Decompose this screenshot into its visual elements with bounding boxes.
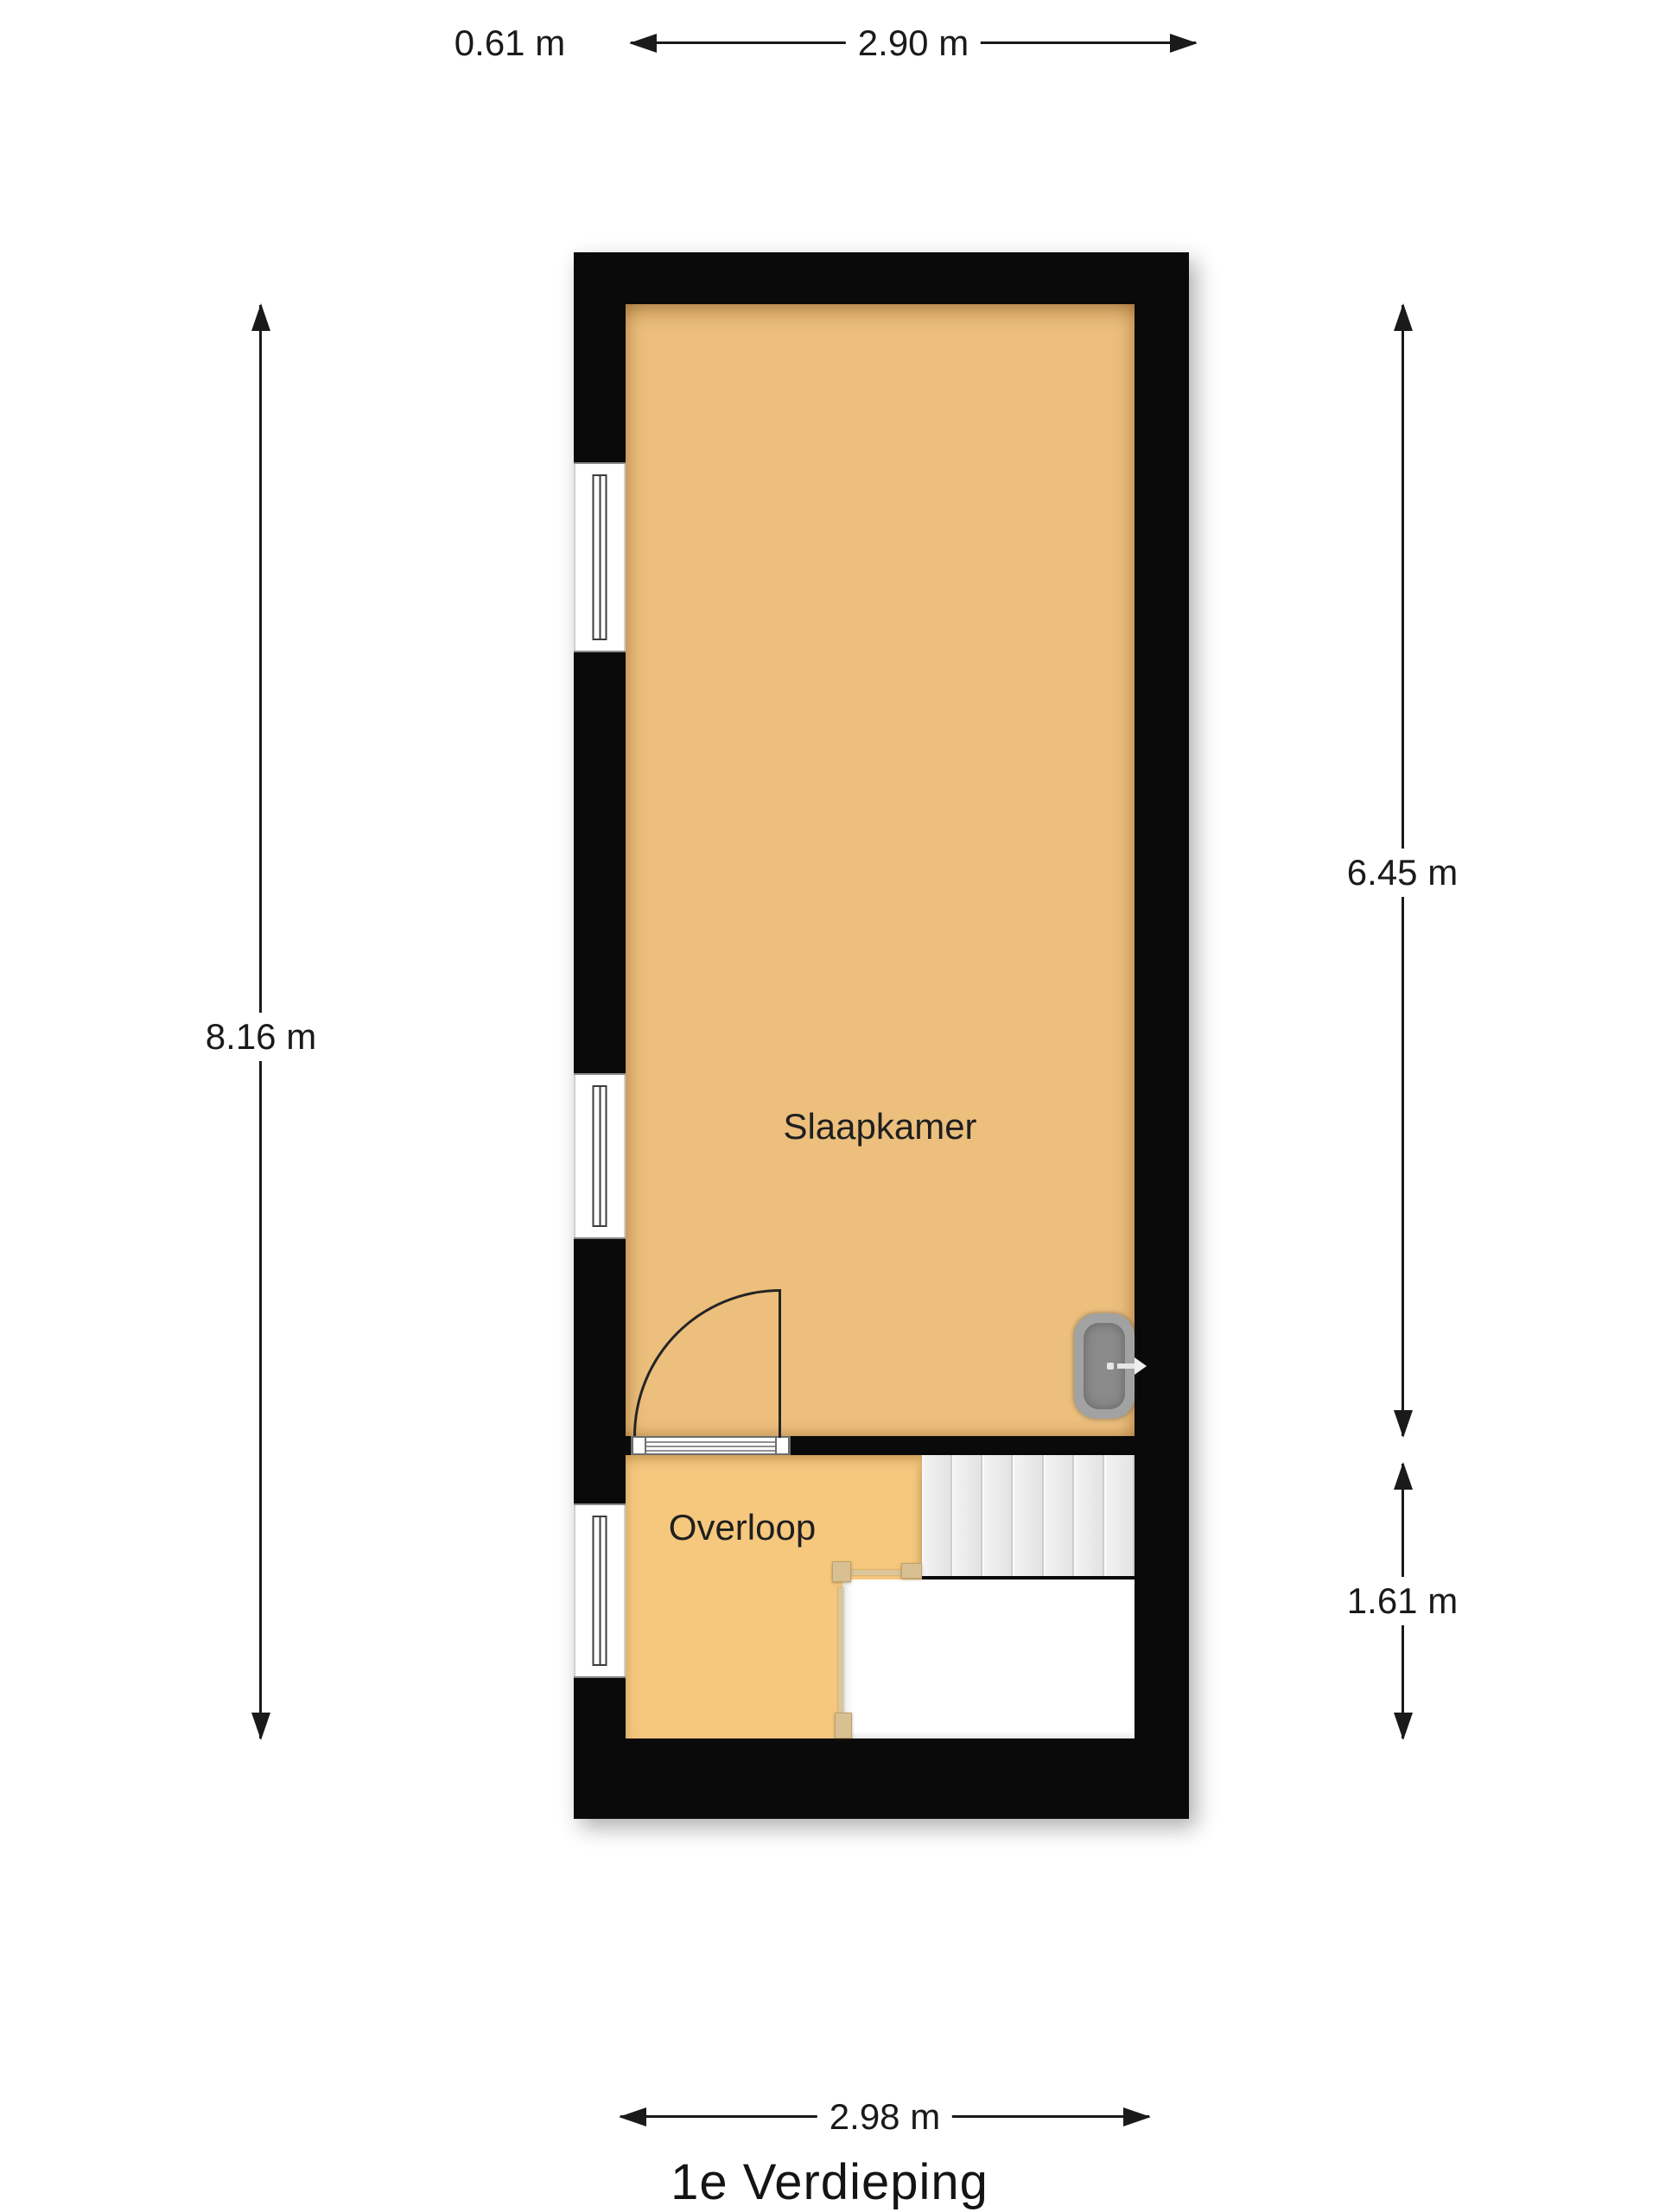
dim-bottom-width-label: 2.98 m: [817, 2093, 952, 2141]
stair-tread: [922, 1455, 952, 1576]
window-mullion: [593, 474, 607, 640]
railing-horizontal: [849, 1570, 903, 1575]
valve-stem: [1117, 1363, 1135, 1369]
room-overloop-label: Overloop: [626, 1507, 859, 1548]
railing-vertical: [838, 1587, 843, 1713]
stair-tread: [1074, 1455, 1104, 1576]
floorplan-page: 0.61 m 2.90 m 8.16 m 6.45 m 1.61 m 2.98 …: [0, 0, 1659, 2212]
arrowhead-down-icon: [1394, 1410, 1413, 1438]
dim-left-height-label: 8.16 m: [194, 1013, 328, 1061]
floor-plan-walls: Slaapkamer Overloop: [574, 252, 1189, 1819]
window-mullion-line: [599, 1087, 601, 1225]
window-icon: [574, 1073, 626, 1239]
window-mullion: [593, 1085, 607, 1227]
arrowhead-left-icon: [619, 2107, 646, 2126]
door-jamb: [632, 1436, 646, 1455]
arrowhead-right-icon: [1123, 2107, 1151, 2126]
valve-dot: [1107, 1363, 1114, 1370]
railing-post: [832, 1561, 851, 1582]
room-slaapkamer-label: Slaapkamer: [626, 1106, 1135, 1147]
room-slaapkamer-floor: [626, 304, 1135, 1436]
arrowhead-up-icon: [251, 303, 270, 331]
dim-right-lower-label: 1.61 m: [1335, 1577, 1470, 1625]
arrowhead-down-icon: [1394, 1713, 1413, 1740]
floor-title: 1e Verdieping: [0, 2153, 1659, 2211]
stairs-icon: [922, 1455, 1135, 1576]
dim-right-upper-label: 6.45 m: [1335, 849, 1470, 897]
dim-top-offset-label: 0.61 m: [442, 19, 577, 67]
valve-tip: [1135, 1357, 1147, 1375]
window-icon: [574, 462, 626, 652]
arrowhead-up-icon: [1394, 303, 1413, 331]
window-icon: [574, 1503, 626, 1678]
radiator-valve-icon: [1107, 1357, 1147, 1375]
arrowhead-up-icon: [1394, 1462, 1413, 1490]
stair-tread: [1044, 1455, 1074, 1576]
arrowhead-right-icon: [1170, 34, 1198, 53]
door-icon: [631, 1436, 791, 1455]
stair-tread: [1104, 1455, 1135, 1576]
arrowhead-down-icon: [251, 1713, 270, 1740]
stair-tread: [982, 1455, 1013, 1576]
railing-post: [835, 1713, 852, 1738]
stairwell-void: [842, 1580, 1135, 1738]
stair-tread: [952, 1455, 982, 1576]
window-mullion: [593, 1516, 607, 1666]
window-mullion-line: [599, 476, 601, 639]
window-mullion-line: [599, 1517, 601, 1664]
railing-post: [901, 1563, 922, 1579]
door-jamb: [775, 1436, 790, 1455]
dim-top-width-label: 2.90 m: [846, 19, 981, 67]
stair-tread: [1013, 1455, 1043, 1576]
arrowhead-left-icon: [629, 34, 657, 53]
